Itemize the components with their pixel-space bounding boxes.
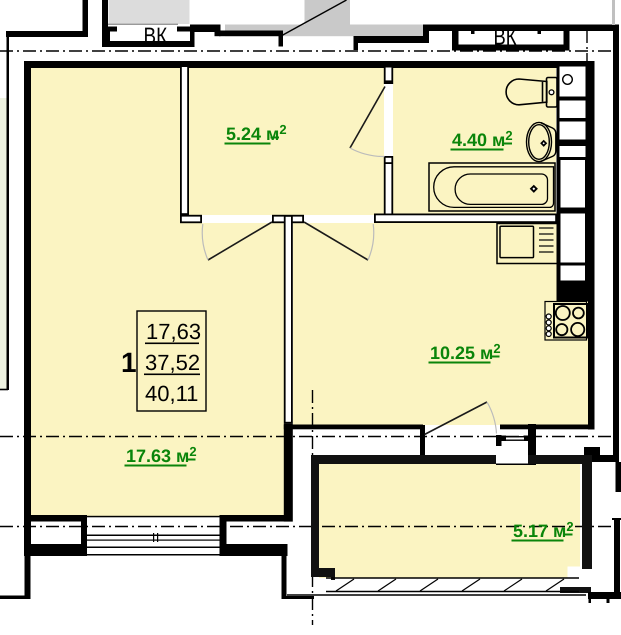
svg-text:40,11: 40,11 [145, 381, 198, 406]
svg-text:5.17 м2: 5.17 м2 [513, 519, 574, 541]
svg-text:37,52: 37,52 [145, 350, 200, 375]
svg-text:1: 1 [121, 347, 137, 378]
svg-text:ВК: ВК [494, 24, 517, 50]
svg-text:5.24 м2: 5.24 м2 [226, 122, 287, 144]
svg-text:4.40 м2: 4.40 м2 [452, 128, 513, 150]
svg-text:10.25 м2: 10.25 м2 [430, 341, 501, 363]
svg-text:ВК: ВК [144, 23, 168, 49]
svg-text:17,63: 17,63 [146, 319, 201, 344]
svg-text:17.63 м2: 17.63 м2 [126, 444, 197, 466]
